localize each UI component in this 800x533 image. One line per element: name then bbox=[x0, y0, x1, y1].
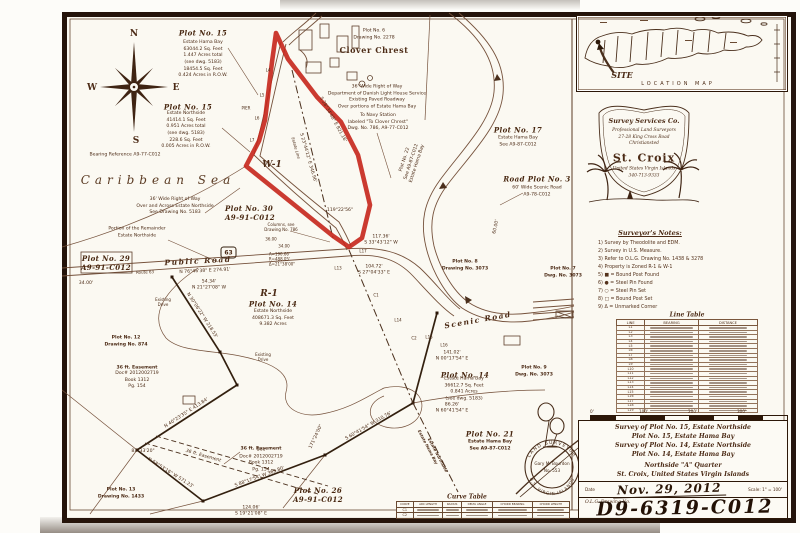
measure-36-00: 36.00 bbox=[265, 237, 276, 242]
public-road-bearing: N 76°46'38" E 274.91' bbox=[179, 267, 231, 276]
plot17-title: Plot No. 17 bbox=[494, 126, 542, 135]
mark-c2: C2 bbox=[411, 336, 416, 341]
compass-north-label: N bbox=[130, 29, 138, 39]
measure-117-36: 117.36' S 33°43'12" W bbox=[364, 235, 398, 248]
measure-86-26: 86.26' N 60°41'54" E bbox=[436, 403, 468, 416]
curve-table-title: Curve Table bbox=[444, 494, 490, 501]
scale-label-100: 100' bbox=[639, 409, 688, 414]
columns-note: Columns, see Drawing No. 786 bbox=[264, 222, 297, 232]
angle-119-22: 119°22'56" bbox=[327, 208, 353, 214]
scale-note: Scale: 1" = 100' bbox=[748, 487, 782, 492]
plot14-hama-details: Estate Hama Bay 36612.7 Sq. Feet 0.841 A… bbox=[444, 377, 484, 404]
measure-104-72: 104.72' S 27°04'33" E bbox=[358, 265, 390, 278]
remainder-note: Portion of the Remainder Estate Northsid… bbox=[108, 226, 165, 239]
curve-arc-data: A=190.66' R=488.05' Δ=21°38'00" bbox=[269, 252, 295, 267]
plot15-northside-details: Estate Northside 41414.1 Sq. Feet 0.951 … bbox=[161, 111, 210, 151]
measure-141-02: 141.02' N 00°17'54" E bbox=[436, 351, 468, 364]
bearing-n30-06: N 30°06'22" W 218.53' bbox=[184, 292, 218, 340]
drawing-number-handwritten: D9-6319-C012 bbox=[581, 495, 789, 521]
measure-34-00-east: 34.00 bbox=[278, 244, 289, 249]
mark-l15: L15 bbox=[425, 335, 432, 340]
public-road-label: Public Road bbox=[164, 255, 231, 267]
measure-124-06: 124.06' S 19°21'08" E bbox=[235, 506, 267, 519]
scale-bar-labels: 0' 100' 200' 300' bbox=[590, 409, 786, 414]
scale-label-300: 300' bbox=[737, 409, 786, 414]
curve-table-body: C1C2 bbox=[397, 507, 570, 518]
plot14-r1-title: Plot No. 14 bbox=[249, 300, 297, 309]
plot17-details: Estate Hama Bay See A9-87-C012 bbox=[498, 135, 538, 148]
caribbean-sea-label: Caribbean Sea bbox=[81, 173, 236, 187]
plot21-details: Estate Hama Bay See A9-87-C012 bbox=[468, 439, 512, 452]
measure-54-34: 54.34' N 21°27'08" W bbox=[192, 280, 226, 293]
mark-l6: L6 bbox=[255, 116, 260, 121]
plot7-label: Plot No. 7 Dwg. No. 3073 bbox=[544, 266, 582, 279]
measure-60-00: 60.00' bbox=[492, 219, 501, 234]
existing-drive-label-1: Existing Drive bbox=[155, 297, 171, 307]
easement-line-label: 36 ft. Easement bbox=[185, 449, 222, 465]
existing-drive-label-2: Existing Drive bbox=[255, 352, 271, 362]
surveyor-note-4: 4) Property is Zoned R-1 & W-1 bbox=[598, 265, 672, 270]
surveyor-note-9: 9) Δ = Unmarked Corner bbox=[598, 305, 657, 310]
surveyor-note-8: 8) □ = Bound Post Set bbox=[598, 297, 652, 302]
route-63-shield-number: 63 bbox=[224, 249, 232, 256]
compass-south-label: S bbox=[133, 136, 140, 146]
danish-right-of-way-note: 36' Wide Right of Way Department of Dani… bbox=[328, 85, 426, 112]
bearing-n58-53: N 58°53'16" W 571.23' bbox=[146, 457, 194, 490]
mark-l14: L14 bbox=[394, 318, 401, 323]
measure-34-00-west: 34.00' bbox=[79, 281, 93, 287]
surveyor-note-3: 3) Refer to O.L.G. Drawing No. 1438 & 32… bbox=[598, 257, 703, 262]
logo-island-name: St. Croix bbox=[613, 152, 675, 165]
plot8-label: Plot No. 8 Drawing No. 3073 bbox=[442, 259, 488, 272]
mark-l7: L7 bbox=[250, 138, 255, 143]
curve-table-row: C2 bbox=[397, 513, 570, 519]
mark-l16: L16 bbox=[440, 343, 447, 348]
plot30-label: Plot No. 30 A9-91-C012 bbox=[225, 204, 275, 222]
plot6-label: Plot No. 6 Drawing No. 2278 bbox=[353, 28, 394, 41]
title-block-location: St. Croix, United States Virgin Islands bbox=[579, 471, 787, 478]
plot26-label: Plot No. 26 A9-91-C012 bbox=[293, 486, 343, 504]
plot15-hama-bay-title: Plot No. 15 bbox=[179, 29, 227, 38]
logo-footer: United States Virgin Islands 340-713-933… bbox=[613, 166, 676, 179]
surveyor-note-1: 1) Survey by Theodolite and EDM. bbox=[598, 241, 680, 246]
line-table-title: Line Table bbox=[670, 312, 705, 319]
title-block-survey-lines: Survey of Plot No. 15, Estate Northside … bbox=[579, 424, 787, 460]
line-table: LINE BEARING DISTANCE L1L2L3L4L5L6L7L8L9… bbox=[616, 319, 758, 413]
easement1-details: Doc# 2012002719 Book 1312 Pg. 154 bbox=[115, 371, 158, 391]
surveyor-note-6: 6) ● = Steel Pin Found bbox=[598, 281, 653, 286]
surveyor-note-2: 2) Survey in U.S. Measure. bbox=[598, 249, 662, 254]
plot13-label: Plot No. 13 Drawing No. 1433 bbox=[98, 487, 144, 500]
mark-l17: L17 bbox=[359, 249, 366, 254]
title-block: Survey of Plot No. 15, Estate Northside … bbox=[578, 420, 788, 519]
route-63-label: Route 63 bbox=[136, 269, 154, 275]
pier-label: PIER bbox=[242, 106, 251, 111]
plot29-label: Plot No. 29 A9-91-C012 bbox=[81, 254, 131, 272]
plot15-hama-bay-details: Estate Hama Bay 63044.2 Sq. Feet 1.447 A… bbox=[178, 40, 227, 80]
surveyor-note-5: 5) ■ = Bound Post Found bbox=[598, 273, 659, 278]
mark-l13: L13 bbox=[334, 266, 341, 271]
angle-83-33: 83°33'20" bbox=[131, 449, 154, 455]
line-table-body: L1L2L3L4L5L6L7L8L9L10L11L12L13L14L15L16L… bbox=[617, 326, 758, 413]
surveyor-note-7: 7) ○ = Steel Pin Set bbox=[598, 289, 646, 294]
scale-label-0: 0' bbox=[590, 409, 639, 414]
location-map-inset bbox=[576, 15, 788, 92]
bearing-n40-23: N 40°23'35" E 413.84' bbox=[164, 397, 210, 430]
scenic-road-label: Scenic Road bbox=[444, 310, 513, 331]
date-label: Date bbox=[585, 487, 595, 492]
logo-company-name: Survey Services Co. bbox=[609, 117, 680, 125]
mark-c1: C1 bbox=[373, 293, 378, 298]
compass-west-label: W bbox=[87, 83, 97, 93]
title-block-quarter: Northside "A" Quarter bbox=[579, 462, 787, 469]
scale-label-200: 200' bbox=[688, 409, 737, 414]
compass-east-label: E bbox=[173, 83, 180, 93]
bearing-reference-note: Bearing Reference A9-77-C012 bbox=[89, 153, 160, 160]
plot14-r1-details: Estate Northside 408671.3 Sq. Feet 9.382… bbox=[252, 309, 294, 329]
to-navy-station-note: To Navy Station labeled "To Clover Chres… bbox=[347, 113, 408, 133]
road-plot3-title: Road Plot No. 3 bbox=[503, 175, 570, 184]
angle-171-24: 171°24'00" bbox=[309, 424, 326, 450]
plot21-title: Plot No. 21 bbox=[466, 430, 514, 439]
bearing-s60-41: S 60°41'54" W 310.76' bbox=[345, 411, 394, 443]
logo-address: Professional Land Surveyors 27-28 King C… bbox=[612, 128, 676, 148]
plot22-label: Plot No. 22 See A9-87-C012 Estate Hama B… bbox=[396, 140, 427, 184]
mark-l5: L5 bbox=[260, 93, 265, 98]
plot12-label: Plot No. 12 Drawing No. 874 bbox=[104, 335, 147, 348]
surveyor-notes-title: Surveyor's Notes: bbox=[618, 229, 682, 237]
zone-r1-label: R-1 bbox=[260, 289, 277, 299]
zone-w1-label: W-1 bbox=[262, 160, 282, 170]
plot9-label: Plot No. 9 Dwg. No. 3073 bbox=[515, 365, 553, 378]
curve-table: CURVE ARC LENGTH RADIUS DELTA ANGLE CHOR… bbox=[396, 501, 570, 519]
road-plot3-details: 60' Wide Scenic Road A9-78-C012 bbox=[512, 185, 561, 198]
survey-map-scan: LAND SURVEYOR U.S. VIRGIN ISLANDS Gary M… bbox=[0, 0, 800, 533]
northside-right-of-way-note: 36' Wide Right of Way Over and Across Es… bbox=[136, 197, 213, 217]
clover-chrest-label: Clover Chrest bbox=[340, 45, 409, 55]
mark-l4: L4 bbox=[266, 68, 271, 73]
